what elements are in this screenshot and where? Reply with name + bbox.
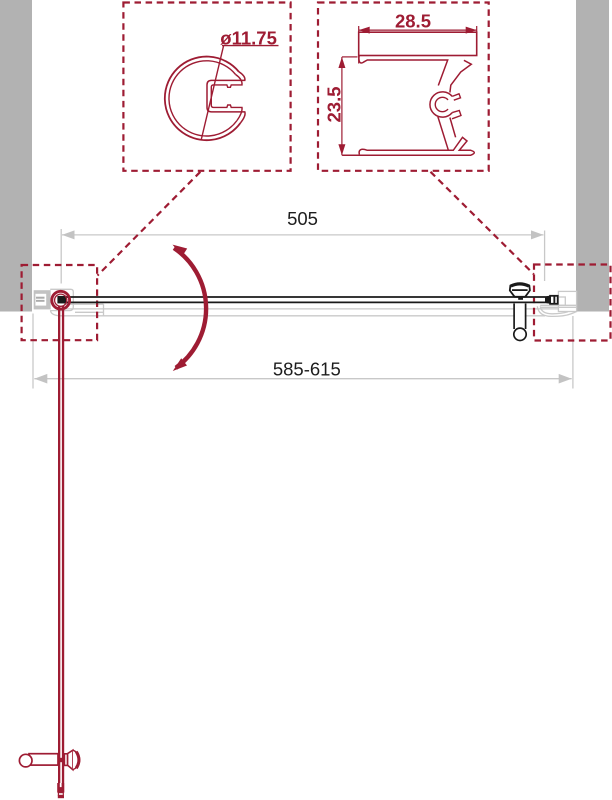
svg-text:28.5: 28.5	[395, 10, 431, 31]
svg-text:505: 505	[287, 208, 318, 229]
svg-text:585-615: 585-615	[273, 359, 341, 380]
svg-text:23.5: 23.5	[324, 86, 345, 122]
svg-text:ø11.75: ø11.75	[220, 27, 277, 48]
